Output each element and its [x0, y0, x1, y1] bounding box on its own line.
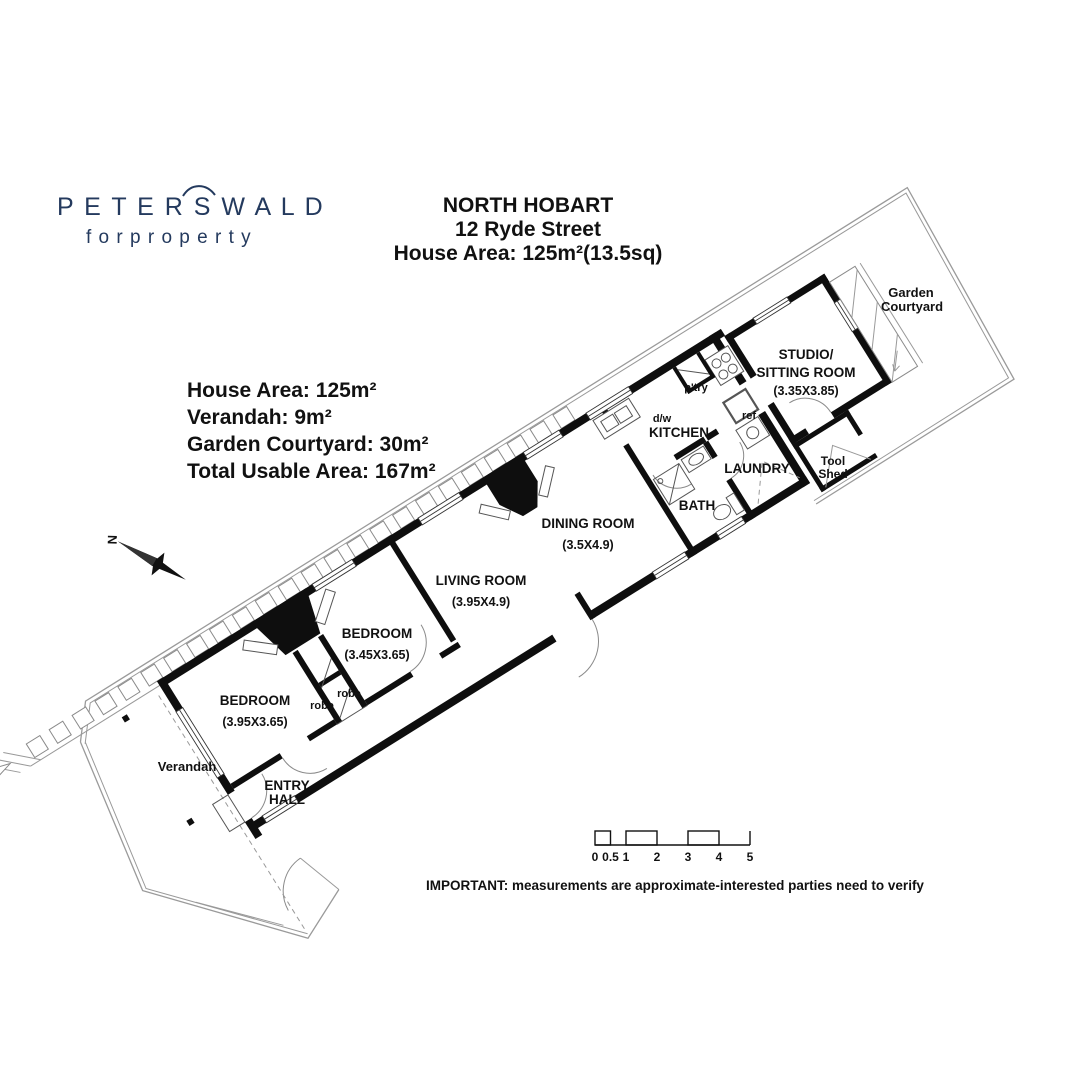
- fixture-label-dw: d/w: [653, 413, 672, 425]
- header-area: House Area: 125m²(13.5sq): [394, 242, 663, 265]
- scale-bar: 0 0.5 1 2 3 4 5: [592, 831, 754, 864]
- room-label-bedroom1: BEDROOM: [220, 693, 291, 708]
- fixture-label-robe2: robe: [337, 688, 361, 700]
- area-summary: House Area: 125m² Verandah: 9m² Garden C…: [187, 379, 436, 483]
- room-label-living: LIVING ROOM: [436, 573, 527, 588]
- fixture-label-ref: ref: [742, 410, 756, 422]
- scale-label-5: 5: [747, 850, 754, 864]
- plan-geometry: [0, 188, 1076, 1042]
- floor-plan-page: N P E T E R S W A L D f o r p r o p e r …: [0, 0, 1080, 1080]
- room-label-dining: DINING ROOM: [542, 516, 635, 531]
- scale-label-05: 0.5: [602, 850, 619, 864]
- room-label-laundry: LAUNDRY: [724, 461, 790, 476]
- room-dims-bedroom1: (3.95X3.65): [222, 715, 287, 729]
- summary-house-area: House Area: 125m²: [187, 379, 376, 402]
- scale-label-4: 4: [716, 850, 723, 864]
- fixture-label-robe1: robe: [310, 700, 334, 712]
- room-label-toolshed-2: Shed: [818, 467, 847, 481]
- north-arrow-icon: N: [99, 523, 192, 591]
- room-labels: BEDROOM (3.95X3.65) BEDROOM (3.45X3.65) …: [158, 285, 943, 807]
- room-label-entry-1: ENTRY: [264, 778, 309, 793]
- room-label-verandah: Verandah: [158, 759, 217, 774]
- disclaimer-text: IMPORTANT: measurements are approximate-…: [426, 878, 924, 893]
- room-dims-living: (3.95X4.9): [452, 595, 510, 609]
- room-label-studio-2: SITTING ROOM: [757, 365, 856, 380]
- scale-label-2: 2: [654, 850, 661, 864]
- header-suburb: NORTH HOBART: [443, 194, 613, 217]
- room-label-bedroom2: BEDROOM: [342, 626, 413, 641]
- scale-label-1: 1: [623, 850, 630, 864]
- room-dims-dining: (3.5X4.9): [562, 538, 613, 552]
- room-label-kitchen: KITCHEN: [649, 425, 709, 440]
- brand-tagline: f o r p r o p e r t y: [86, 227, 252, 248]
- summary-garden-courtyard: Garden Courtyard: 30m²: [187, 433, 429, 456]
- summary-total: Total Usable Area: 167m²: [187, 460, 436, 483]
- fixture-label-pantry: p'try: [684, 382, 708, 394]
- room-label-entry-2: HALL: [269, 792, 305, 807]
- plan-header: NORTH HOBART 12 Ryde Street House Area: …: [394, 194, 663, 265]
- room-label-studio-1: STUDIO/: [779, 347, 834, 362]
- room-dims-bedroom2: (3.45X3.65): [344, 648, 409, 662]
- brand-wordmark: P E T E R S W A L D: [57, 193, 325, 221]
- scale-label-3: 3: [685, 850, 692, 864]
- room-label-courtyard-1: Garden: [888, 285, 934, 300]
- brand-logo: P E T E R S W A L D f o r p r o p e r t …: [57, 186, 325, 248]
- verandah-deck: [92, 691, 309, 970]
- scale-label-0: 0: [592, 850, 599, 864]
- summary-verandah: Verandah: 9m²: [187, 406, 332, 429]
- room-label-courtyard-2: Courtyard: [881, 299, 943, 314]
- north-label: N: [105, 535, 120, 545]
- room-label-toolshed-1: Tool: [821, 454, 845, 468]
- room-label-bath: BATH: [679, 498, 716, 513]
- floor-plan-svg: N P E T E R S W A L D f o r p r o p e r …: [0, 0, 1080, 1080]
- header-street: 12 Ryde Street: [455, 218, 601, 241]
- room-dims-studio: (3.35X3.85): [773, 384, 838, 398]
